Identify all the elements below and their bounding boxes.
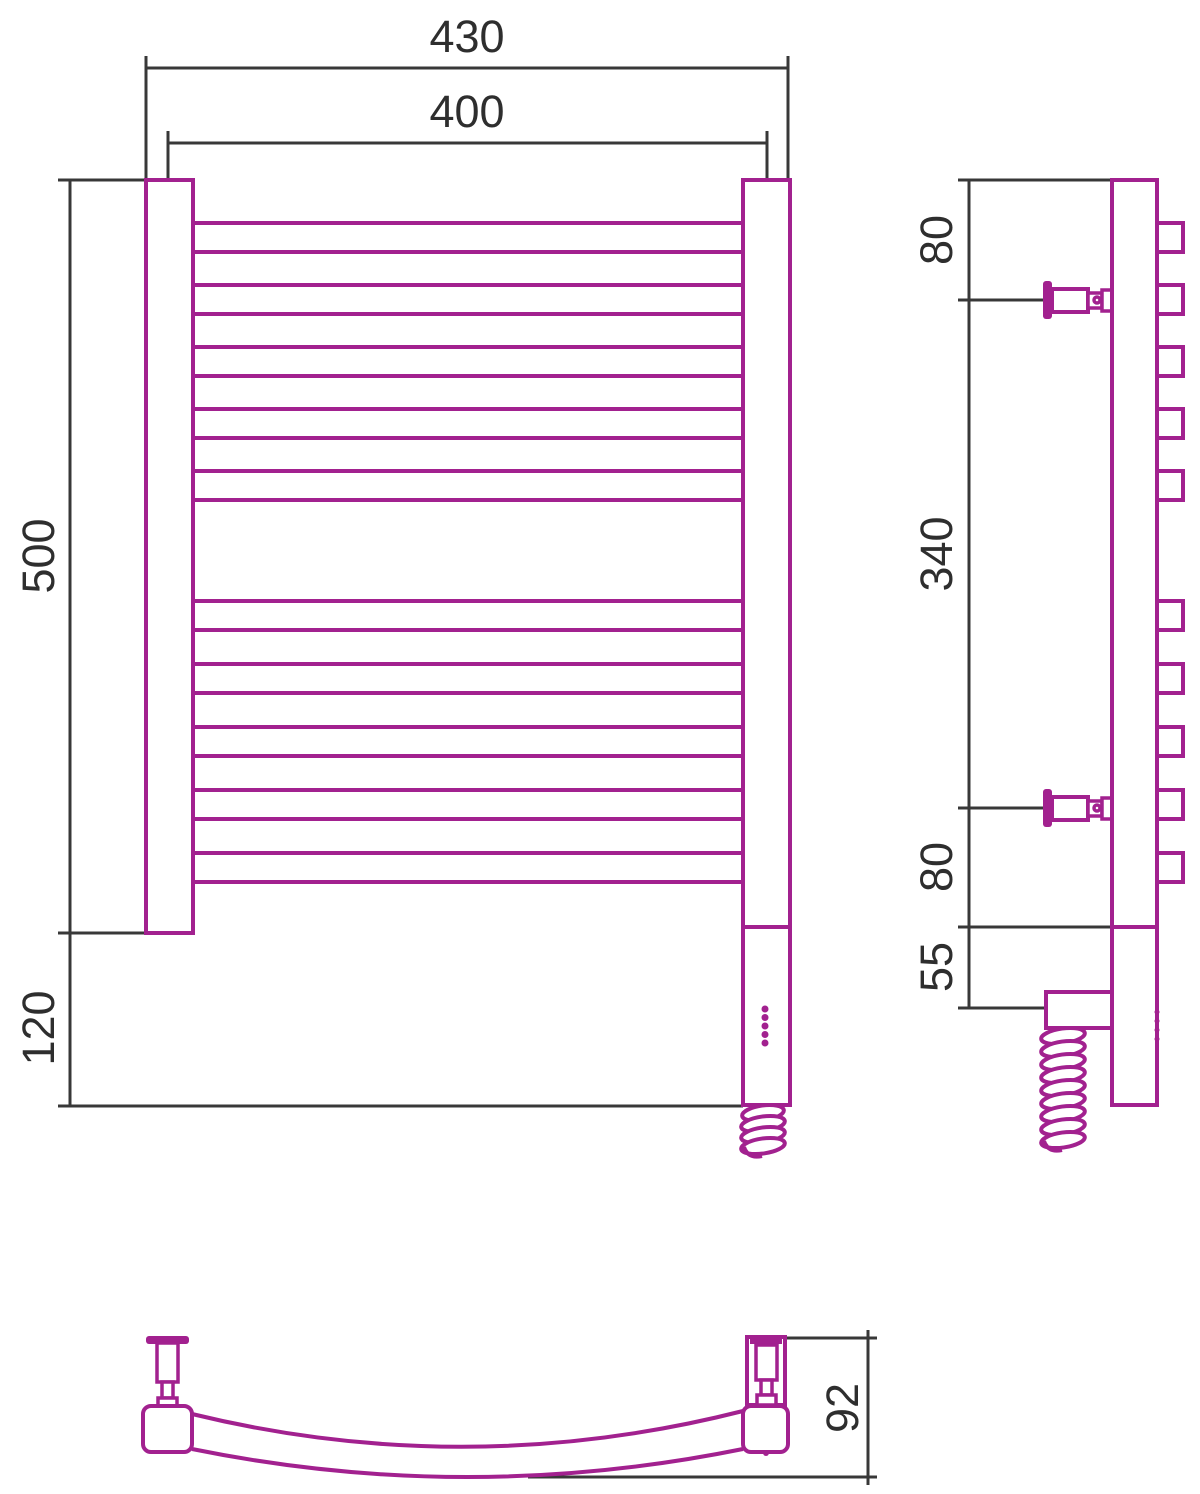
led-dot <box>762 1040 769 1047</box>
rung <box>190 601 746 630</box>
rung-tab <box>1155 347 1183 376</box>
rung-tab <box>1155 727 1183 756</box>
rung <box>190 664 746 693</box>
dim-label-depth: 92 <box>817 1383 868 1433</box>
rung-tabs <box>1155 223 1183 882</box>
bracket-body <box>1052 797 1088 820</box>
valve-right-housing <box>747 1337 785 1405</box>
rung <box>190 853 746 882</box>
heating-element-side <box>1046 992 1112 1028</box>
rung <box>190 471 746 500</box>
towel-rail-drawing: 430 400 500 120 80 340 80 55 92 <box>0 0 1200 1494</box>
technical-drawing-canvas: 430 400 500 120 80 340 80 55 92 <box>0 0 1200 1494</box>
valve-body <box>756 1345 777 1380</box>
valve-left <box>146 1336 189 1406</box>
rung <box>190 223 746 252</box>
corner-block-left <box>143 1406 192 1452</box>
rung <box>190 409 746 438</box>
led-dot <box>762 1006 769 1013</box>
dim-label-bracket-span: 340 <box>911 516 962 591</box>
rung-tab <box>1155 601 1183 630</box>
led-dot-edge <box>1155 1037 1160 1042</box>
rung <box>190 790 746 819</box>
power-cable-coil-side <box>1040 1026 1086 1151</box>
bottom-view-product <box>143 1336 788 1477</box>
wall-bracket-top <box>1043 281 1112 319</box>
led-dot-edge <box>1155 1019 1160 1024</box>
rung-tab <box>1155 409 1183 438</box>
valve-base <box>757 1395 776 1405</box>
valve-stem <box>162 1382 173 1398</box>
dim-label-bracket-to-base: 80 <box>911 842 962 892</box>
rung-tab <box>1155 223 1183 252</box>
rung-tab <box>1155 285 1183 314</box>
dim-label-top-to-bracket: 80 <box>911 215 962 265</box>
bracket-pin <box>1094 297 1100 303</box>
rung-tab <box>1155 853 1183 882</box>
rung <box>190 727 746 756</box>
bracket-pin <box>1094 805 1100 811</box>
rung <box>190 285 746 314</box>
rail-left <box>146 180 193 933</box>
bracket-body <box>1052 289 1088 312</box>
arc-tube-front-edge <box>192 1411 743 1447</box>
led-dot <box>762 1031 769 1038</box>
valve-stem <box>761 1380 772 1395</box>
dim-label-overall-width: 430 <box>429 11 504 62</box>
led-dot <box>762 1023 769 1030</box>
wall-bracket-bottom <box>1043 789 1112 827</box>
led-dot-edge <box>1155 1010 1160 1015</box>
dim-label-body-height: 500 <box>13 518 64 593</box>
led-dot-edge <box>1155 1028 1160 1033</box>
front-view-product <box>146 180 790 1157</box>
rung-tab <box>1155 471 1183 500</box>
arc-tube-back-edge <box>192 1449 743 1477</box>
power-cable-coil-front <box>740 1103 786 1157</box>
dim-label-lower-extension: 120 <box>13 990 64 1065</box>
side-profile-bar <box>1112 180 1157 1105</box>
side-view-product <box>1040 180 1183 1151</box>
rung-tab <box>1155 790 1183 819</box>
corner-block-right <box>743 1406 788 1452</box>
rung <box>190 347 746 376</box>
rail-right-electric <box>743 180 790 1105</box>
dim-label-center-width: 400 <box>429 86 504 137</box>
dim-label-electric-section: 55 <box>911 942 962 992</box>
corner-block-nub <box>763 1450 769 1456</box>
led-dot <box>762 1014 769 1021</box>
valve-body <box>157 1343 178 1382</box>
valve-flange <box>750 1337 782 1344</box>
rung-tab <box>1155 664 1183 693</box>
